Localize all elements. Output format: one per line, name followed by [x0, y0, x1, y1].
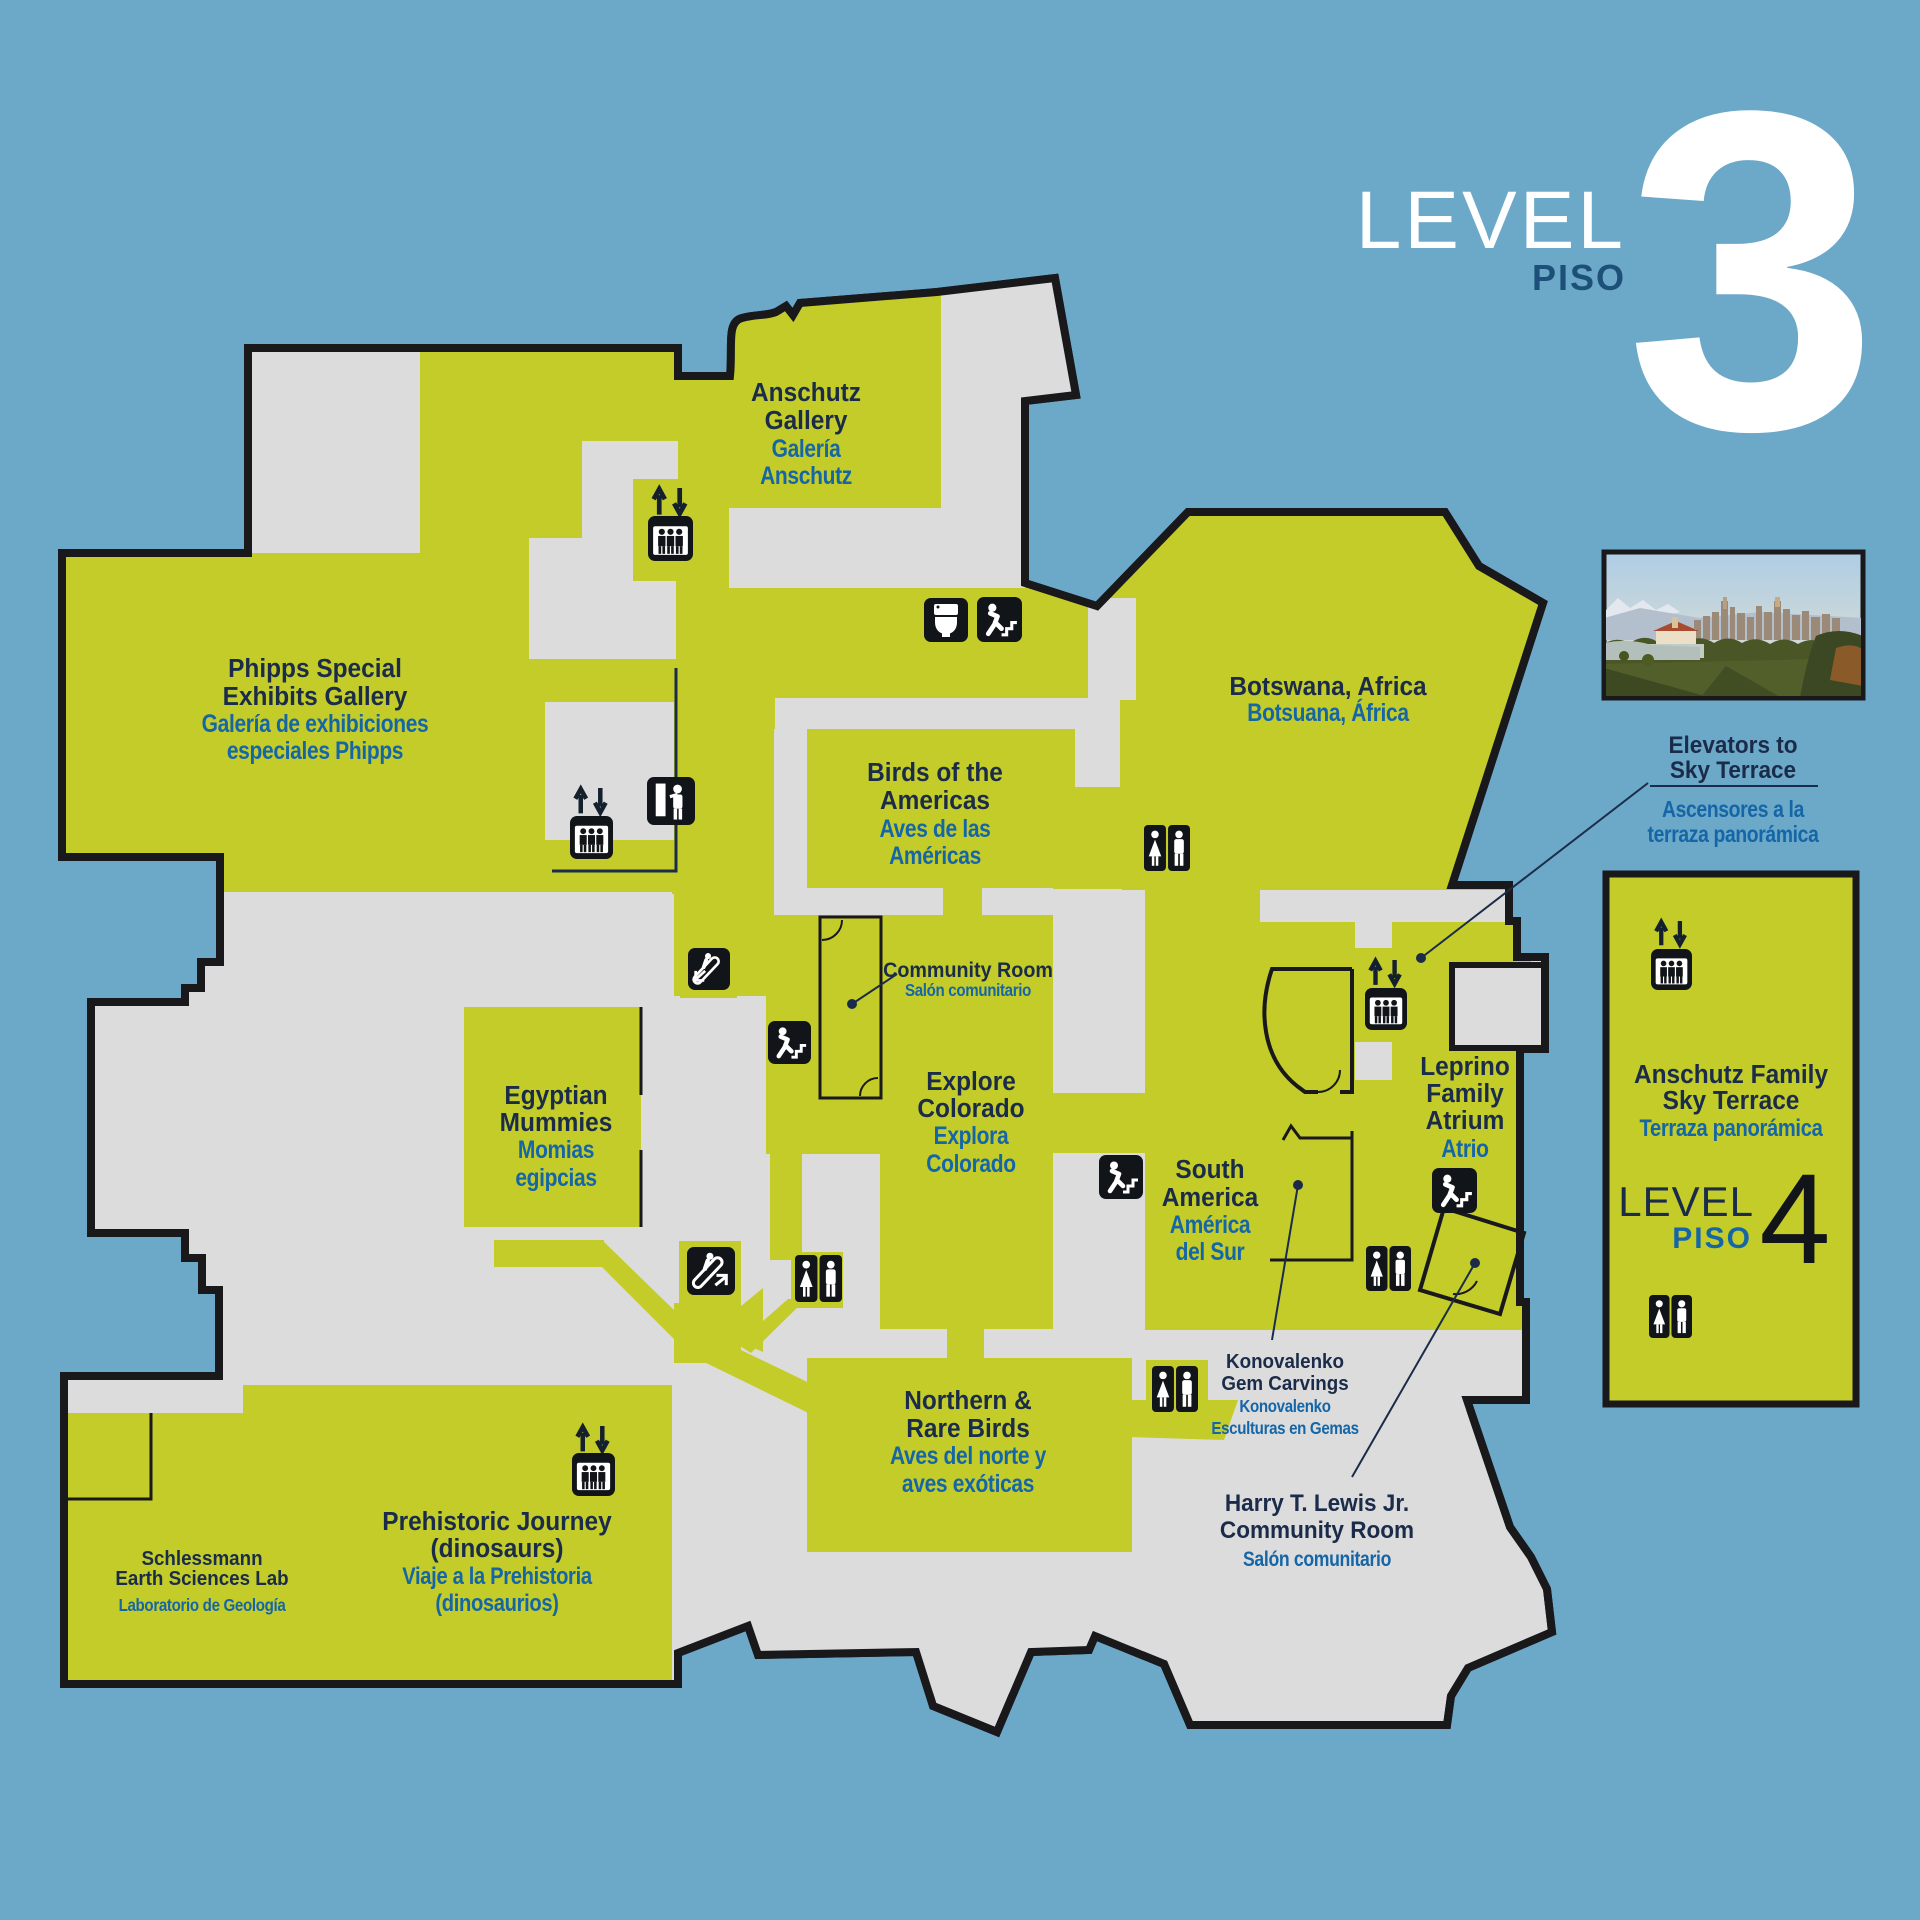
svg-text:terraza panorámica: terraza panorámica — [1648, 823, 1819, 848]
svg-text:3: 3 — [1625, 17, 1878, 525]
svg-text:Ascensores a la: Ascensores a la — [1662, 798, 1804, 823]
svg-text:Colorado: Colorado — [926, 1149, 1016, 1177]
svg-text:Konovalenko: Konovalenko — [1226, 1350, 1344, 1373]
svg-text:Salón comunitario: Salón comunitario — [905, 980, 1031, 1001]
svg-text:4: 4 — [1759, 1148, 1830, 1291]
svg-text:Community Room: Community Room — [883, 959, 1053, 982]
svg-text:Prehistoric Journey: Prehistoric Journey — [382, 1507, 611, 1536]
svg-text:Galería: Galería — [772, 434, 841, 462]
svg-text:America: America — [1162, 1183, 1259, 1212]
svg-text:Birds of the: Birds of the — [867, 758, 1003, 787]
svg-text:América: América — [1170, 1210, 1251, 1238]
svg-text:Konovalenko: Konovalenko — [1239, 1396, 1330, 1417]
svg-text:Explora: Explora — [934, 1121, 1009, 1149]
svg-text:Colorado: Colorado — [917, 1094, 1024, 1123]
svg-text:Americas: Americas — [880, 786, 990, 815]
svg-text:Américas: Américas — [889, 841, 981, 869]
svg-text:LEVEL: LEVEL — [1618, 1178, 1754, 1225]
svg-text:Sky Terrace: Sky Terrace — [1670, 756, 1796, 783]
svg-text:Northern &: Northern & — [904, 1386, 1032, 1415]
svg-text:Sky Terrace: Sky Terrace — [1663, 1086, 1800, 1115]
svg-text:Harry T. Lewis Jr.: Harry T. Lewis Jr. — [1225, 1489, 1409, 1516]
svg-text:aves exóticas: aves exóticas — [902, 1469, 1034, 1497]
svg-text:Rare Birds: Rare Birds — [906, 1414, 1030, 1443]
svg-text:(dinosaurios): (dinosaurios) — [435, 1589, 558, 1616]
svg-text:Gem Carvings: Gem Carvings — [1221, 1372, 1348, 1395]
svg-text:especiales Phipps: especiales Phipps — [227, 736, 403, 764]
svg-text:Anschutz Family: Anschutz Family — [1634, 1060, 1828, 1089]
svg-text:Phipps Special: Phipps Special — [228, 654, 402, 683]
svg-text:Atrio: Atrio — [1441, 1134, 1489, 1162]
svg-text:Elevators to: Elevators to — [1668, 731, 1797, 758]
svg-text:Mummies: Mummies — [500, 1108, 613, 1137]
svg-text:Gallery: Gallery — [765, 406, 848, 435]
svg-text:Anschutz: Anschutz — [751, 378, 861, 407]
svg-text:(dinosaurs): (dinosaurs) — [430, 1534, 563, 1563]
svg-text:Momias: Momias — [518, 1135, 594, 1163]
svg-text:del Sur: del Sur — [1176, 1237, 1245, 1265]
svg-text:Earth Sciences Lab: Earth Sciences Lab — [115, 1567, 288, 1590]
svg-text:Community Room: Community Room — [1220, 1516, 1414, 1543]
svg-text:Aves de las: Aves de las — [879, 814, 990, 842]
svg-text:Aves del norte y: Aves del norte y — [890, 1441, 1046, 1469]
svg-text:South: South — [1175, 1155, 1244, 1184]
svg-text:PISO: PISO — [1672, 1222, 1752, 1255]
svg-text:Family: Family — [1426, 1079, 1503, 1108]
svg-text:Viaje a la Prehistoria: Viaje a la Prehistoria — [402, 1562, 592, 1589]
svg-text:Exhibits Gallery: Exhibits Gallery — [223, 682, 408, 711]
svg-text:Explore: Explore — [926, 1067, 1016, 1096]
svg-text:Esculturas en Gemas: Esculturas en Gemas — [1211, 1418, 1358, 1439]
svg-text:LEVEL: LEVEL — [1356, 175, 1626, 266]
svg-text:Botsuana, África: Botsuana, África — [1247, 697, 1409, 726]
svg-text:Botswana, Africa: Botswana, Africa — [1229, 672, 1427, 701]
svg-text:PISO: PISO — [1532, 257, 1626, 298]
svg-text:egipcias: egipcias — [515, 1163, 596, 1191]
svg-text:Laboratorio de Geología: Laboratorio de Geología — [119, 1595, 287, 1616]
svg-text:Leprino: Leprino — [1420, 1052, 1510, 1081]
svg-text:Terraza panorámica: Terraza panorámica — [1640, 1114, 1824, 1141]
svg-text:Anschutz: Anschutz — [760, 461, 852, 489]
svg-text:Atrium: Atrium — [1426, 1106, 1505, 1135]
svg-text:Salón comunitario: Salón comunitario — [1243, 1548, 1392, 1572]
svg-text:Galería de exhibiciones: Galería de exhibiciones — [202, 709, 429, 737]
svg-text:Egyptian: Egyptian — [504, 1081, 607, 1110]
